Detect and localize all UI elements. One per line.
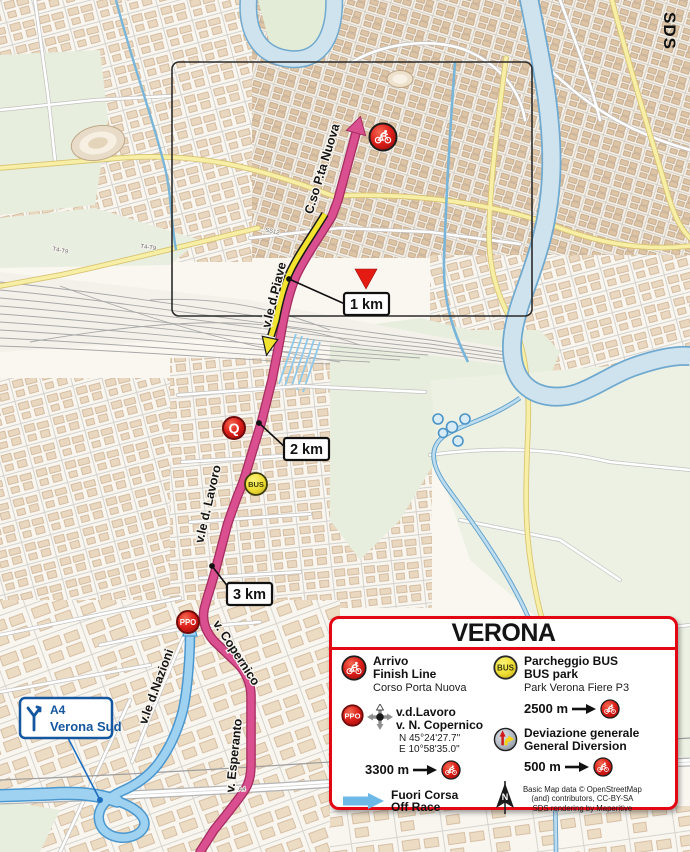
svg-text:Verona Sud: Verona Sud [50, 719, 122, 734]
bus-park-badge: BUS [245, 473, 267, 495]
bus-label-en: BUS park [524, 668, 629, 681]
svg-text:BUS: BUS [497, 663, 515, 672]
road-label-a4-west: A4 [238, 787, 246, 793]
svg-text:A4: A4 [50, 703, 66, 717]
ppo-distance-row: 3300 m [365, 760, 491, 780]
bus-distance-row: 2500 m [524, 699, 629, 719]
ppo-street-1: v.d.Lavoro [396, 706, 483, 719]
cyclist-badge-icon [600, 699, 620, 719]
svg-text:PPO: PPO [344, 711, 360, 720]
legend-bus-row: BUS Parcheggio BUS BUS park Park Verona … [493, 655, 669, 719]
legend-credits-row: N Basic Map data © OpenStreetMap (and) c… [493, 781, 669, 815]
ppo-street-2: v. N. Copernico [396, 719, 483, 732]
verona-race-map: C.so P.ta Nuova v.le d.Piave v.le d. Lav… [0, 0, 690, 852]
arrow-right-icon [572, 704, 596, 714]
arena [387, 71, 413, 88]
offrace-arrow-icon [341, 793, 385, 809]
svg-text:N: N [502, 792, 509, 802]
sds-watermark: SDS [660, 12, 679, 50]
legend-ppo-row: PPO v.d.Lavoro v. N. Copernico [341, 704, 491, 732]
bus-distance: 2500 m [524, 702, 568, 716]
quartier-tappa-badge: Q [223, 417, 245, 439]
legend-offrace-row: Fuori Corsa Off Race [341, 789, 491, 815]
arrow-right-icon [413, 765, 437, 775]
diversion-label-it: Deviazione generale [524, 727, 639, 740]
crossroads-icon [367, 704, 393, 730]
svg-text:1 km: 1 km [350, 297, 383, 313]
legend-title: VERONA [332, 619, 675, 646]
diversion-distance-row: 500 m [524, 757, 639, 777]
bus-label-it: Parcheggio BUS [524, 655, 629, 668]
finish-street: Corso Porta Nuova [373, 683, 467, 695]
ppo-distance: 3300 m [365, 762, 409, 777]
map-credits: Basic Map data © OpenStreetMap (and) con… [523, 782, 642, 814]
ppo-badge: PPO [177, 611, 199, 633]
finish-label-it: Arrivo [373, 655, 467, 668]
svg-text:PPO: PPO [180, 618, 196, 627]
ppo-coordinates: N 45°24'27.7" E 10°58'35.0" [399, 733, 491, 756]
north-arrow-icon: N [493, 781, 517, 815]
svg-text:Q: Q [229, 420, 240, 436]
legend-panel: VERONA Arrivo Finish Line Corso Porta Nu… [329, 616, 678, 810]
cyclist-badge-icon [441, 760, 461, 780]
finish-label-en: Finish Line [373, 668, 467, 681]
arrow-right-icon [565, 762, 589, 772]
offrace-label-en: Off Race [391, 801, 458, 814]
cyclist-badge-icon [593, 757, 613, 777]
finish-line-icon [341, 655, 367, 681]
diversion-label-en: General Diversion [524, 740, 639, 753]
svg-text:2 km: 2 km [290, 442, 323, 458]
svg-text:3 km: 3 km [233, 587, 266, 603]
finish-marker [370, 124, 397, 151]
bus-subtitle: Park Verona Fiere P3 [524, 683, 629, 695]
svg-text:BUS: BUS [248, 480, 264, 489]
diversion-icon [493, 727, 518, 752]
ppo-icon: PPO [341, 704, 364, 727]
legend-finish-row: Arrivo Finish Line Corso Porta Nuova [341, 655, 491, 695]
diversion-distance: 500 m [524, 760, 561, 774]
bus-park-icon: BUS [493, 655, 518, 680]
legend-diversion-row: Deviazione generale General Diversion 50… [493, 727, 669, 777]
